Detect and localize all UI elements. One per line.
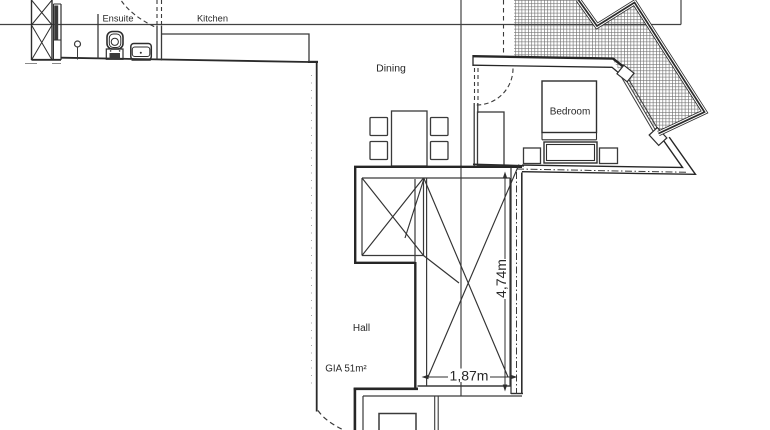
svg-text:Kitchen: Kitchen	[197, 14, 228, 24]
svg-text:Hall: Hall	[353, 323, 370, 334]
svg-text:1,87m: 1,87m	[450, 368, 489, 384]
svg-text:Bedroom: Bedroom	[550, 107, 591, 118]
svg-text:4,74m: 4,74m	[493, 259, 509, 298]
svg-text:Dining: Dining	[376, 63, 406, 75]
svg-text:Ensuite: Ensuite	[102, 14, 133, 24]
svg-text:GIA 51m²: GIA 51m²	[325, 364, 367, 375]
